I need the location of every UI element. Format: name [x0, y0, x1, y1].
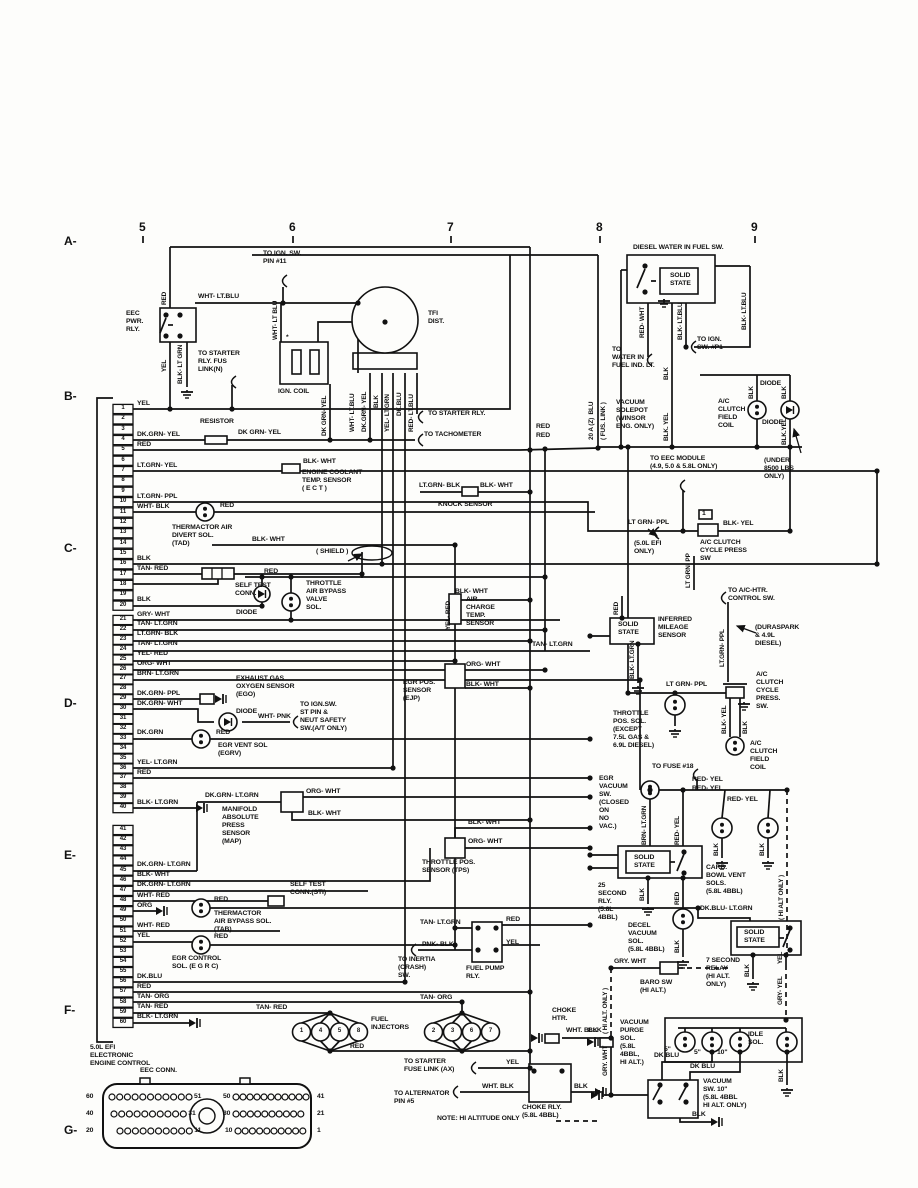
junction-dot — [367, 437, 372, 442]
diagram-label: BLK- WHT — [455, 588, 488, 596]
eec-pin-label: 41 — [317, 1093, 324, 1101]
eec-pin-label: 30 — [223, 1110, 230, 1118]
diagram-vlabel: WHT- LT BLU — [272, 301, 279, 340]
injector-number: 3 — [448, 1028, 458, 1035]
junction-dot — [683, 344, 688, 349]
diagram-vlabel: RED — [161, 292, 168, 305]
pin-wire-label: DK.GRN- LT.GRN — [137, 881, 191, 889]
pin-number: 60 — [113, 1019, 133, 1026]
terminal-dot — [738, 1043, 742, 1047]
diagram-vlabel: BLK — [781, 386, 788, 399]
diagram-label: THROTTLE AIR BYPASS VALVE SOL. — [306, 580, 346, 612]
diagram-vlabel: BLK- LT.BLU — [741, 293, 748, 330]
component-circle — [730, 1032, 750, 1052]
terminal-dot — [738, 1037, 742, 1041]
junction-dot — [737, 1049, 742, 1054]
diagram-label: A/C CLUTCH CYCLE PRESS SW — [700, 539, 747, 563]
pin-number: 3 — [113, 426, 133, 433]
terminal-dot — [289, 597, 293, 601]
junction-dot — [493, 925, 498, 930]
junction-dot — [288, 574, 293, 579]
diagram-vlabel: LT GRN- PP — [685, 553, 692, 588]
diagram-label: TO IGN. SW. PIN #11 — [263, 250, 301, 266]
injector-number: 6 — [467, 1028, 477, 1035]
junction-dot — [787, 528, 792, 533]
ground-bullet-icon — [215, 695, 222, 703]
grid-row-label: G- — [64, 1123, 77, 1137]
grid-column-label: 6 — [289, 220, 296, 234]
junction-dot — [625, 444, 630, 449]
pin-number: 4 — [113, 436, 133, 443]
pin-number: 55 — [113, 968, 133, 975]
pin-wire-label: BLK- WHT — [137, 871, 170, 879]
diagram-label: CHOKE RLY. (5.8L 4BBL) — [522, 1104, 562, 1120]
diagram-label: SOLID STATE — [634, 854, 655, 870]
pin-number: 41 — [113, 826, 133, 833]
wire — [455, 828, 590, 838]
component-box — [726, 687, 744, 698]
pin-number: 38 — [113, 784, 133, 791]
terminal-dot — [199, 903, 203, 907]
shield-ellipse — [352, 546, 392, 560]
offpage-connector-icon — [681, 480, 686, 492]
diagram-label: DIESEL WATER IN FUEL SW. — [633, 244, 724, 252]
junction-dot — [355, 300, 360, 305]
eec-connector-key — [240, 1078, 250, 1084]
junction-dot — [672, 690, 677, 695]
diagram-label: CARB. BOWL VENT SOLS. (5.8L 4BBL) — [706, 864, 746, 896]
diagram-vlabel: 20 A (Z) BLU — [588, 402, 595, 440]
component-circle — [726, 737, 744, 755]
junction-dot — [587, 633, 592, 638]
junction-dot — [608, 1035, 613, 1040]
pin-wire-label: RED — [137, 769, 151, 777]
pin-number: 37 — [113, 774, 133, 781]
diagram-label: GRY. WHT — [614, 958, 646, 966]
junction-dot — [177, 312, 182, 317]
diagram-label: TO STARTER RLY. — [428, 410, 485, 418]
diagram-label: THERMACTOR AIR DIVERT SOL. (TAD) — [172, 524, 232, 548]
diagram-label: A/C CLUTCH CYCLE PRESS. SW. — [756, 671, 783, 711]
ground-bullet-icon — [189, 1019, 196, 1027]
pin-number: 19 — [113, 591, 133, 598]
pin-number: 8 — [113, 477, 133, 484]
terminal-dot — [720, 829, 724, 833]
junction-dot — [527, 685, 532, 690]
diagram-label: DIODE — [236, 708, 257, 716]
pin-wire-label: TAN- ORG — [137, 993, 169, 1001]
component-circle — [675, 1032, 695, 1052]
diagram-label: DK GRN- YEL — [238, 429, 281, 437]
diagram-label: DIODE — [762, 419, 783, 427]
diagram-label: YEL — [506, 1059, 519, 1067]
junction-dot — [163, 333, 168, 338]
diagram-label: TO WATER IN FUEL IND. LT. — [612, 346, 655, 370]
diagram-vlabel: RED — [674, 892, 681, 905]
junction-dot — [402, 979, 407, 984]
pin-number: 43 — [113, 846, 133, 853]
offpage-connector-icon — [454, 1086, 459, 1098]
diagram-label: SELF TEST CONN. — [235, 582, 271, 598]
component-box — [205, 436, 227, 444]
pin-wire-label: YEL- RED — [137, 650, 168, 658]
diagram-label: ORG- WHT — [466, 661, 500, 669]
diagram-vlabel: GRY. WHT — [602, 1046, 609, 1076]
component-circle — [192, 899, 210, 917]
junction-dot — [750, 952, 755, 957]
eec-pin-label: 21 — [317, 1110, 324, 1118]
pin-wire-label: BLK — [137, 555, 151, 563]
diagram-label: TFI DIST. — [428, 310, 444, 326]
pin-wire-label: RED — [137, 441, 151, 449]
diagram-label: INFERRED MILEAGE SENSOR — [658, 616, 692, 640]
diagram-label: TO A/C-HTR. CONTROL SW. — [728, 587, 775, 603]
diagram-vlabel: YEL — [777, 952, 784, 964]
diagram-label: VACUUM SOLEPOT (WINSOR ENG. ONLY) — [616, 399, 654, 431]
junction-dot — [527, 989, 532, 994]
junction-dot — [874, 468, 879, 473]
pin-number: 51 — [113, 928, 133, 935]
diagram-vlabel: BLK — [373, 395, 380, 408]
junction-dot — [680, 528, 685, 533]
pin-wire-label: YEL — [137, 400, 150, 408]
pin-number: 34 — [113, 745, 133, 752]
junction-dot — [783, 1017, 788, 1022]
diagram-label: BLK — [588, 1027, 602, 1035]
pin-number: 42 — [113, 836, 133, 843]
junction-dot — [754, 444, 759, 449]
pin-number: 15 — [113, 550, 133, 557]
terminal-dot — [683, 1043, 687, 1047]
junction-dot — [680, 875, 685, 880]
diagram-vlabel: BLK — [639, 888, 646, 901]
eec-pin-label: 1 — [317, 1127, 321, 1135]
junction-dot — [587, 845, 592, 850]
terminal-dot — [755, 405, 759, 409]
junction-dot — [531, 1068, 536, 1073]
junction-dot — [452, 658, 457, 663]
diagram-label: TO FUSE #18 — [652, 763, 693, 771]
diagram-label: ENGINE COOLANT TEMP. SENSOR ( E C T ) — [302, 469, 362, 493]
diagram-label: VACUUM PURGE SOL. (5.8L 4BBL, HI ALT.) — [620, 1019, 649, 1067]
terminal-dot — [199, 734, 203, 738]
component-box — [660, 962, 678, 974]
diagram-label: TAN- LT.GRN — [532, 641, 573, 649]
terminal-dot — [785, 1037, 789, 1041]
pin-number: 24 — [113, 646, 133, 653]
component-box — [445, 664, 465, 688]
pin-number: 35 — [113, 755, 133, 762]
diagram-label: 5" — [694, 1049, 701, 1057]
pin-number: 25 — [113, 656, 133, 663]
terminal-dot — [720, 823, 724, 827]
pin-wire-label: YEL — [137, 932, 150, 940]
diagram-label: YEL — [506, 939, 519, 947]
diagram-vlabel: BLK — [674, 940, 681, 953]
junction-dot — [167, 406, 172, 411]
diagram-label: FUEL INJECTORS — [371, 1016, 409, 1032]
terminal-dot — [199, 946, 203, 950]
eec-pin-label: 10 — [225, 1127, 232, 1135]
terminal-dot — [681, 914, 685, 918]
pin-number: 49 — [113, 907, 133, 914]
junction-dot — [587, 852, 592, 857]
diagram-vlabel: BLK- LT.BLU — [677, 303, 684, 340]
junction-dot — [390, 765, 395, 770]
junction-dot — [542, 667, 547, 672]
pin-wire-label: DK.GRN- LT.GRN — [137, 861, 191, 869]
component-box — [353, 353, 417, 369]
diagram-label: SOLID STATE — [744, 929, 765, 945]
junction-dot — [542, 574, 547, 579]
junction-dot — [527, 447, 532, 452]
junction-dot — [527, 1048, 532, 1053]
junction-dot — [587, 865, 592, 870]
junction-dot — [637, 677, 642, 682]
junction-dot — [681, 870, 686, 875]
pin-wire-label: WHT- RED — [137, 922, 170, 930]
component-box — [698, 524, 718, 536]
junction-dot — [475, 925, 480, 930]
diagram-label: RED — [220, 502, 234, 510]
diagram-label: MANIFOLD ABSOLUTE PRESS SENSOR (MAP) — [222, 806, 259, 846]
pin-number: 45 — [113, 867, 133, 874]
injector-number: 7 — [486, 1028, 496, 1035]
component-box — [282, 464, 300, 473]
junction-dot — [683, 1099, 688, 1104]
pin-number: 36 — [113, 765, 133, 772]
junction-dot — [452, 542, 457, 547]
component-box — [280, 342, 328, 384]
diagram-label: BLK — [574, 1083, 588, 1091]
junction-dot — [459, 999, 464, 1004]
wire — [133, 1002, 462, 1013]
offpage-connector-icon — [419, 434, 424, 446]
junction-dot — [527, 597, 532, 602]
diagram-vlabel: BLK- LT GRN — [177, 345, 184, 384]
diagram-label: KNOCK SENSOR — [438, 501, 492, 509]
diagram-vlabel: BLK — [778, 1069, 785, 1082]
diagram-label: EGR CONTROL SOL. (E G R C) — [172, 955, 221, 971]
diagram-label: LT GRN- PPL — [628, 519, 669, 527]
diagram-label: 5.0L EFI ELECTRONIC ENGINE CONTROL — [90, 1044, 150, 1068]
junction-dot — [229, 406, 234, 411]
pin-number: 46 — [113, 877, 133, 884]
diagram-label: 1 — [702, 510, 706, 518]
diagram-label: TO IGN. SW. #P1 — [697, 336, 723, 352]
pin-number: 32 — [113, 725, 133, 732]
pin-wire-label: YEL- LT.GRN — [137, 759, 177, 767]
diagram-label: NOTE: HI ALTITUDE ONLY — [437, 1115, 520, 1123]
junction-dot — [669, 444, 674, 449]
junction-dot — [382, 319, 387, 324]
injector-number: 1 — [297, 1028, 307, 1035]
injector-number: 8 — [354, 1028, 364, 1035]
junction-dot — [587, 775, 592, 780]
diagram-label: RED- YEL — [727, 796, 758, 804]
injector-number: 4 — [316, 1028, 326, 1035]
component-circle — [673, 909, 693, 929]
ground-bullet-icon — [196, 804, 203, 812]
pin-number: 59 — [113, 1009, 133, 1016]
diagram-label: CHOKE HTR. — [552, 1007, 576, 1023]
junction-dot — [163, 312, 168, 317]
diagram-label: THROTTLE POS. SOL. (EXCEPT 7.5L GAS & 6.… — [613, 710, 654, 750]
wire — [97, 398, 113, 1042]
component-box — [545, 1034, 559, 1043]
injector-number: 2 — [429, 1028, 439, 1035]
wire — [653, 1087, 660, 1100]
pin-number: 9 — [113, 488, 133, 495]
offpage-connector-icon — [419, 411, 424, 423]
diagram-vlabel: BLK — [742, 721, 749, 734]
junction-dot — [542, 627, 547, 632]
pin-wire-label: TAN- RED — [137, 565, 168, 573]
terminal-dot — [766, 829, 770, 833]
diagram-label: TO TACHOMETER — [424, 431, 481, 439]
pin-number: 30 — [113, 705, 133, 712]
diagram-vlabel: RED- YEL — [674, 816, 681, 845]
pin-number: 6 — [113, 457, 133, 464]
diagram-label: TO STARTER RLY. FUS LINK(N) — [198, 350, 240, 374]
pin-wire-label: BRN- LT.GRN — [137, 670, 179, 678]
pin-wire-label: WHT- RED — [137, 892, 170, 900]
junction-dot — [642, 289, 647, 294]
diagram-vlabel: ( HI ALT ONLY ) — [778, 875, 785, 920]
diagram-label: RESISTOR — [200, 418, 234, 426]
diagram-label: RED- YEL — [692, 785, 723, 793]
diagram-vlabel: DK GRN- YEL — [321, 396, 328, 436]
junction-dot — [787, 444, 792, 449]
junction-dot — [359, 571, 364, 576]
terminal-dot — [683, 1037, 687, 1041]
pin-number: 53 — [113, 948, 133, 955]
wire — [679, 1087, 686, 1100]
eec-pin-label: 11 — [194, 1127, 201, 1135]
diagram-label: DECEL VACUUM SOL. (5.8L 4BBL) — [628, 922, 665, 954]
diagram-label: EGR VENT SOL (EGRV) — [218, 742, 267, 758]
diagram-vlabel: BLK — [748, 386, 755, 399]
terminal-dot — [755, 411, 759, 415]
pin-wire-label: BLK- LT.GRN — [137, 1013, 178, 1021]
terminal-dot — [203, 513, 207, 517]
junction-dot — [625, 690, 630, 695]
junction-dot — [587, 794, 592, 799]
diagram-vlabel: BRN- LT.GRN — [641, 806, 648, 845]
diagram-label: FUEL PUMP RLY. — [466, 965, 504, 981]
pointer-arrow-icon — [737, 626, 756, 633]
pin-number: 14 — [113, 540, 133, 547]
diagram-vlabel: DK.BLU — [396, 392, 403, 416]
pin-number: 39 — [113, 794, 133, 801]
terminal-dot — [673, 700, 677, 704]
ground-bullet-icon — [711, 1118, 718, 1126]
diagram-label: RED — [216, 729, 230, 737]
pin-wire-label: DK.GRN — [137, 729, 163, 737]
component-box — [445, 838, 465, 858]
junction-dot — [288, 617, 293, 622]
grid-column-label: 7 — [447, 220, 454, 234]
component-box — [200, 694, 214, 704]
diagram-label: ( SHIELD ) — [316, 548, 348, 556]
pin-number: 57 — [113, 988, 133, 995]
pin-number: 10 — [113, 498, 133, 505]
offpage-connector-icon — [722, 592, 727, 604]
eec-pin-label: 40 — [86, 1110, 93, 1118]
pin-wire-label: TAN- RED — [137, 1003, 168, 1011]
eec-pin-label: 20 — [86, 1127, 93, 1135]
pin-wire-label: LT.GRN- YEL — [137, 462, 177, 470]
pin-number: 21 — [113, 616, 133, 623]
pin-number: 52 — [113, 938, 133, 945]
wire — [637, 269, 645, 288]
junction-dot — [559, 1068, 564, 1073]
junction-dot — [642, 263, 647, 268]
component-box — [281, 792, 303, 812]
diagram-label: RED- YEL — [692, 776, 723, 784]
diagram-label: (UNDER 8500 LBS ONLY) — [764, 457, 794, 481]
diagram-label: BLK- WHT — [468, 819, 501, 827]
diagram-label: LT GRN- PPL — [666, 681, 707, 689]
injector-number: 5 — [335, 1028, 345, 1035]
diagram-label: EEC PWR. RLY. — [126, 310, 143, 334]
terminal-dot — [785, 1043, 789, 1047]
offpage-connector-icon — [294, 716, 299, 728]
diagram-label: BLK- WHT — [466, 681, 499, 689]
junction-dot — [493, 947, 498, 952]
diagram-label: RED — [264, 568, 278, 576]
diagram-vlabel: BLK — [759, 843, 766, 856]
pin-wire-label: BLK- LT.GRN — [137, 799, 178, 807]
pin-wire-label: GRY- WHT — [137, 611, 170, 619]
component-circle — [777, 1032, 797, 1052]
component-circle — [196, 503, 214, 521]
pin-wire-label: DK.GRN- PPL — [137, 690, 180, 698]
component-box — [202, 568, 234, 579]
diagram-label: DK BLU — [654, 1052, 679, 1060]
junction-dot — [784, 787, 789, 792]
junction-dot — [280, 300, 285, 305]
junction-dot — [542, 446, 547, 451]
component-circle — [192, 936, 210, 954]
diagram-label: IDLE SOL. — [748, 1031, 763, 1047]
diagram-label: TO STARTER FUSE LINK (AX) — [404, 1058, 454, 1074]
eec-pin-label: 60 — [86, 1093, 93, 1101]
pin-wire-label: WHT- BLK — [137, 503, 169, 511]
diagram-label: EGR VACUUM SW. (CLOSED ON NO VAC.) — [599, 775, 629, 831]
terminal-dot — [199, 940, 203, 944]
ground-bullet-icon — [587, 1038, 594, 1046]
pin-wire-label: DK.GRN- WHT — [137, 700, 182, 708]
eec-pin-label: 31 — [188, 1110, 195, 1118]
junction-dot — [259, 603, 264, 608]
pin-number: 44 — [113, 856, 133, 863]
component-circle — [758, 818, 778, 838]
pin-number: 22 — [113, 626, 133, 633]
diagram-label: PNK- BLK — [422, 941, 454, 949]
junction-dot — [587, 736, 592, 741]
terminal-dot — [766, 823, 770, 827]
diagram-vlabel: ( HI ALT. ONLY ) — [602, 988, 609, 1034]
pin-wire-label: TAN- LT.GRN — [137, 640, 178, 648]
junction-dot — [527, 817, 532, 822]
offpage-connector-icon — [283, 275, 288, 287]
terminal-dot — [733, 747, 737, 751]
diagram-label: BARO SW (HI ALT.) — [640, 979, 672, 995]
pin-number: 5 — [113, 446, 133, 453]
component-circle — [712, 818, 732, 838]
diagram-vlabel: BLK — [713, 843, 720, 856]
